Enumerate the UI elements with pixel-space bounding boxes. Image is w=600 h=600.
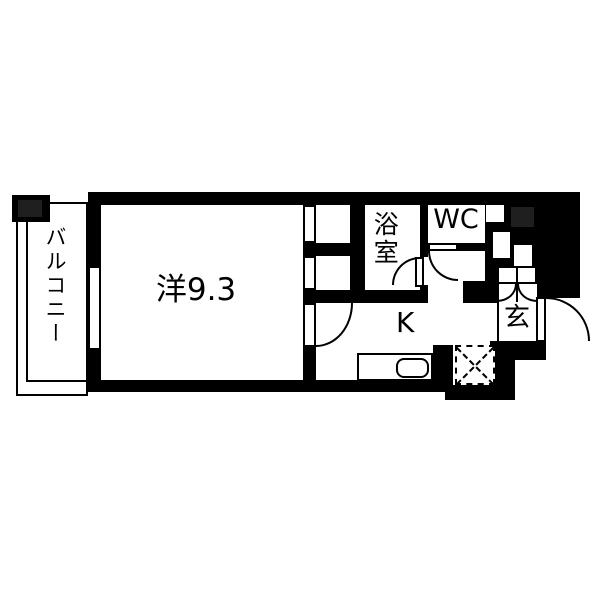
wc-label: WC bbox=[428, 206, 484, 234]
kitchen-label: K bbox=[396, 308, 414, 337]
wall-bath-right-lower bbox=[420, 285, 428, 303]
balcony-window bbox=[88, 268, 101, 348]
entrance-door-leaf bbox=[536, 297, 546, 342]
wall-fridge-left bbox=[433, 345, 453, 385]
wc-door-arc bbox=[428, 251, 458, 281]
floor-plan: バルコニー 洋9.3 浴室 WC K 玄 bbox=[0, 0, 600, 600]
entrance-door-arc bbox=[546, 297, 590, 341]
balcony-label: バルコニー bbox=[44, 226, 66, 346]
wall-bath-left bbox=[350, 205, 365, 303]
balcony-pillar-shade bbox=[18, 200, 42, 217]
partition-below-kitchen-door bbox=[303, 347, 316, 392]
partition-block-upper bbox=[303, 243, 353, 256]
wall-fridge-bottom bbox=[445, 385, 515, 400]
kitchen-door-arc bbox=[316, 303, 353, 347]
kitchen-door-leaf bbox=[303, 303, 316, 347]
entrance-label: 玄 bbox=[497, 305, 537, 332]
kitchen-sink bbox=[396, 358, 429, 378]
wall-wc-bottom bbox=[456, 243, 486, 251]
wall-bath-bottom bbox=[303, 290, 428, 303]
main-room-label: 洋9.3 bbox=[126, 274, 266, 307]
partition-thin-upper bbox=[303, 205, 316, 243]
pipe-shaft-shade bbox=[511, 207, 534, 227]
bathroom-label: 浴室 bbox=[371, 211, 397, 267]
wall-bottom bbox=[88, 380, 445, 392]
wall-hall-stub bbox=[463, 281, 497, 303]
niche-top bbox=[486, 205, 504, 222]
wall-top bbox=[88, 192, 580, 205]
wall-bath-right-upper bbox=[420, 205, 428, 257]
partition-thin-lower bbox=[303, 256, 316, 290]
wc-door-leaf bbox=[428, 243, 458, 251]
niche-middle bbox=[493, 232, 510, 258]
